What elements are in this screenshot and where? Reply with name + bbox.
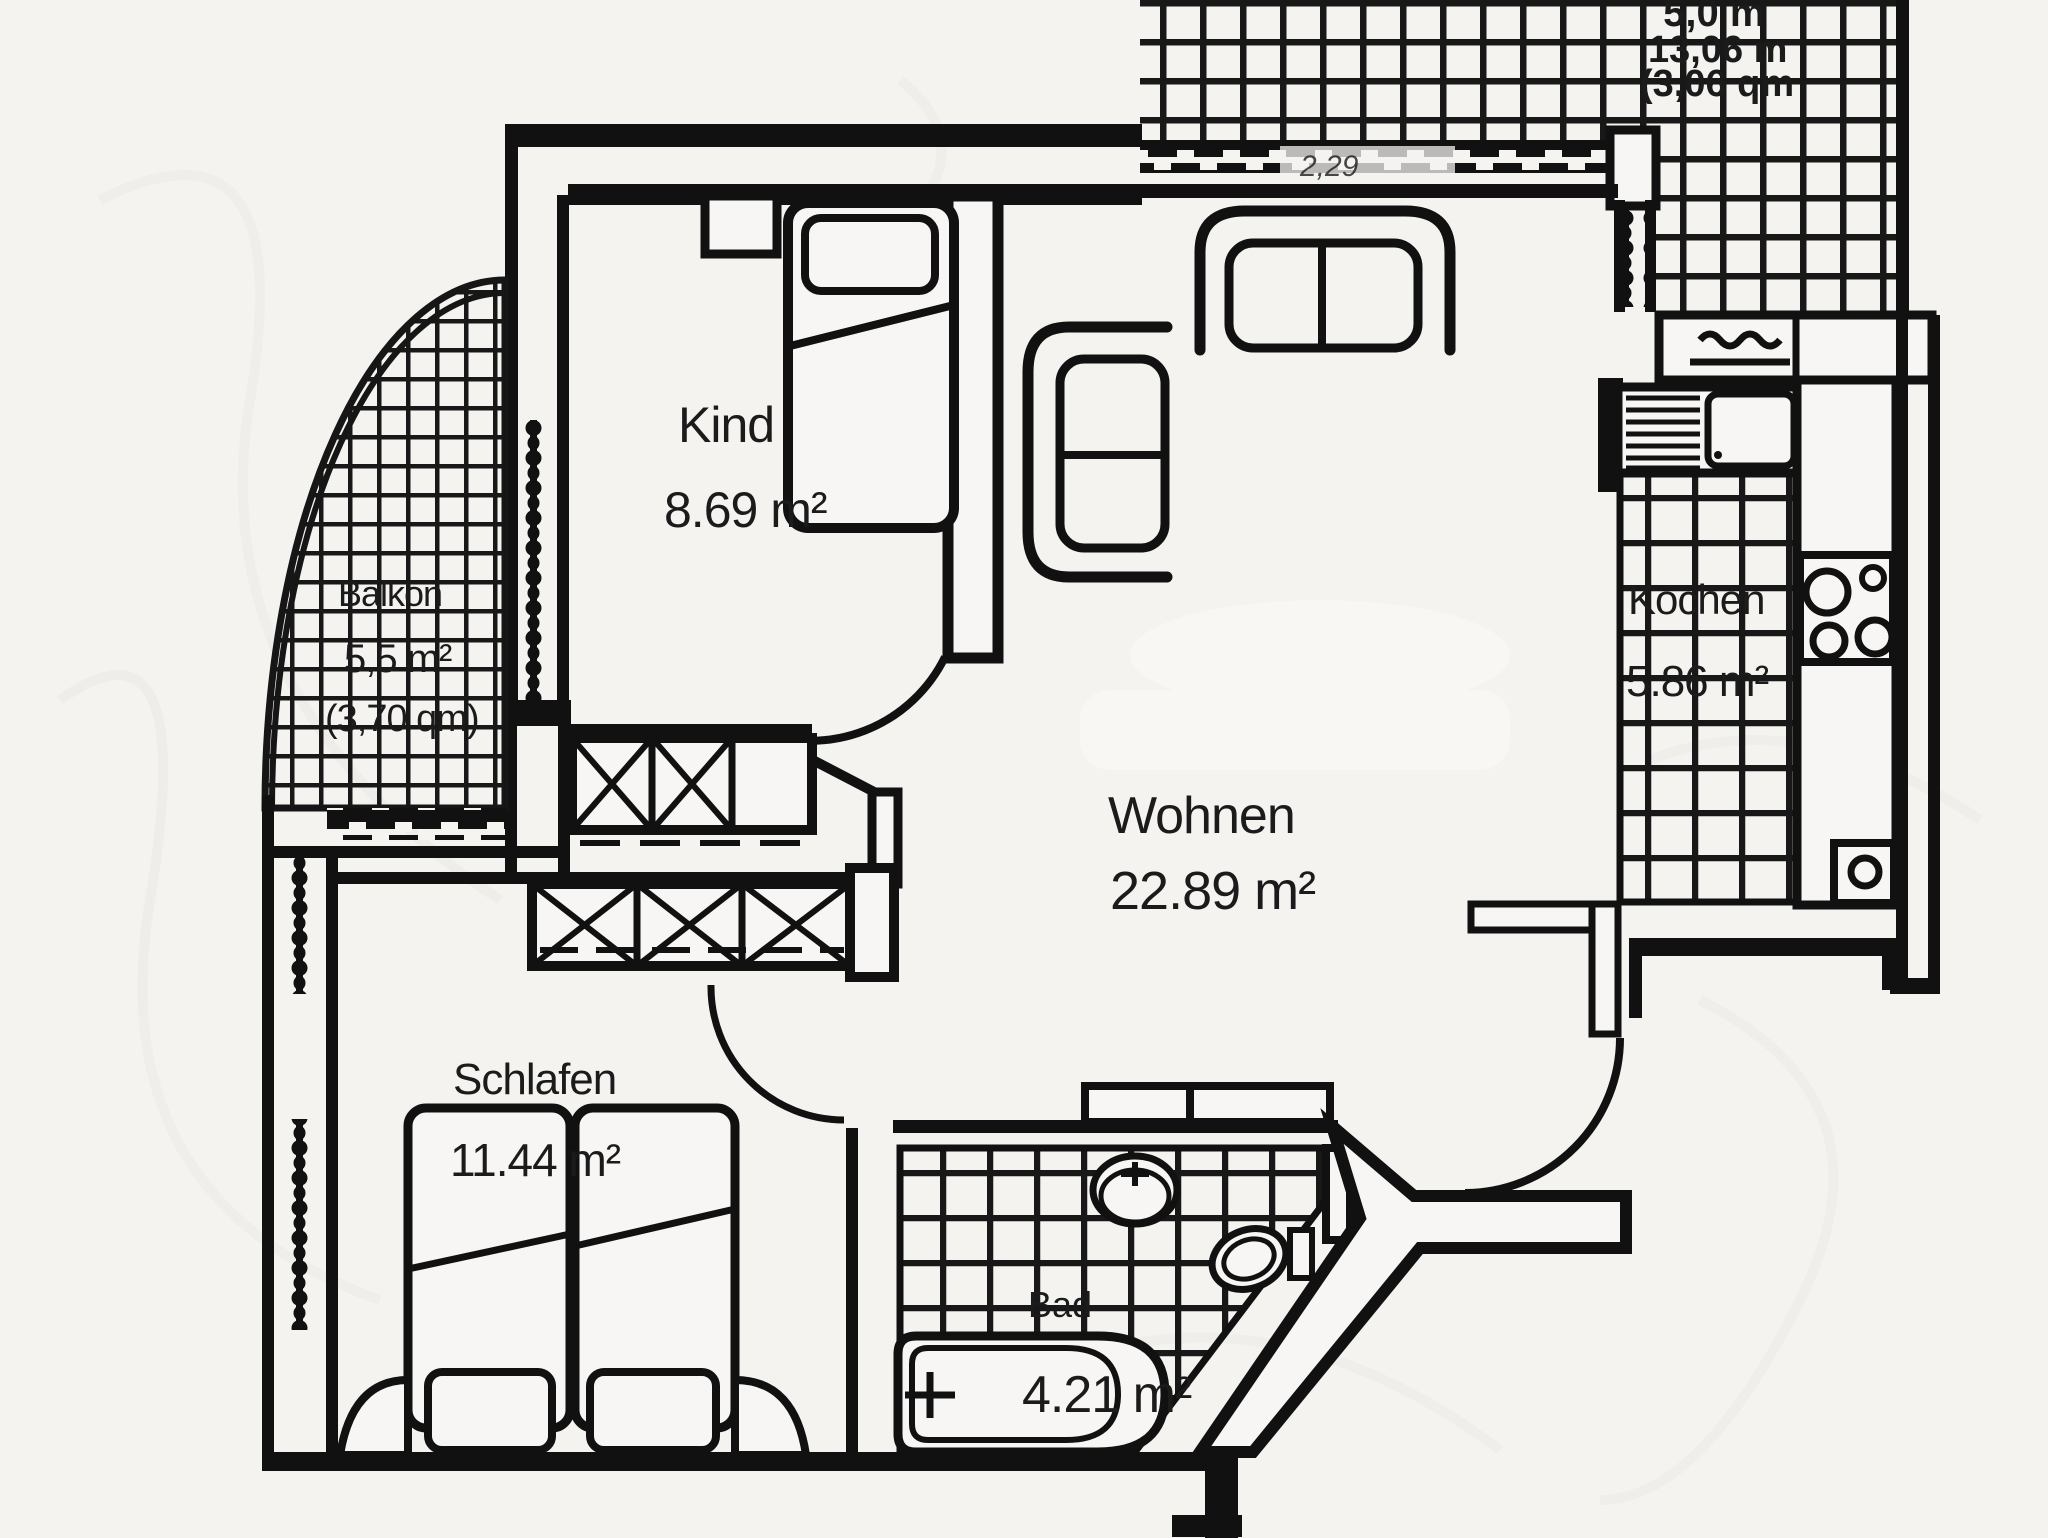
svg-text:Bad: Bad [1028, 1284, 1092, 1325]
svg-text:4.21 m²: 4.21 m² [1022, 1366, 1192, 1424]
svg-text:8.69 m²: 8.69 m² [664, 482, 827, 538]
svg-text:22.89 m²: 22.89 m² [1110, 861, 1315, 921]
svg-text:2,29: 2,29 [1299, 150, 1359, 183]
svg-text:Wohnen: Wohnen [1108, 787, 1295, 845]
svg-text:Schlafen: Schlafen [453, 1055, 616, 1104]
svg-text:5,5 m²: 5,5 m² [344, 637, 452, 681]
svg-text:5.86 m²: 5.86 m² [1626, 657, 1769, 706]
svg-text:(3,70 qm): (3,70 qm) [325, 698, 479, 740]
svg-text:11.44 m²: 11.44 m² [450, 1134, 621, 1186]
svg-text:Kochen: Kochen [1628, 576, 1764, 623]
svg-text:Kind: Kind [678, 397, 774, 453]
svg-text:(3,06 qm: (3,06 qm [1640, 63, 1794, 105]
svg-text:Balkon: Balkon [338, 573, 442, 614]
